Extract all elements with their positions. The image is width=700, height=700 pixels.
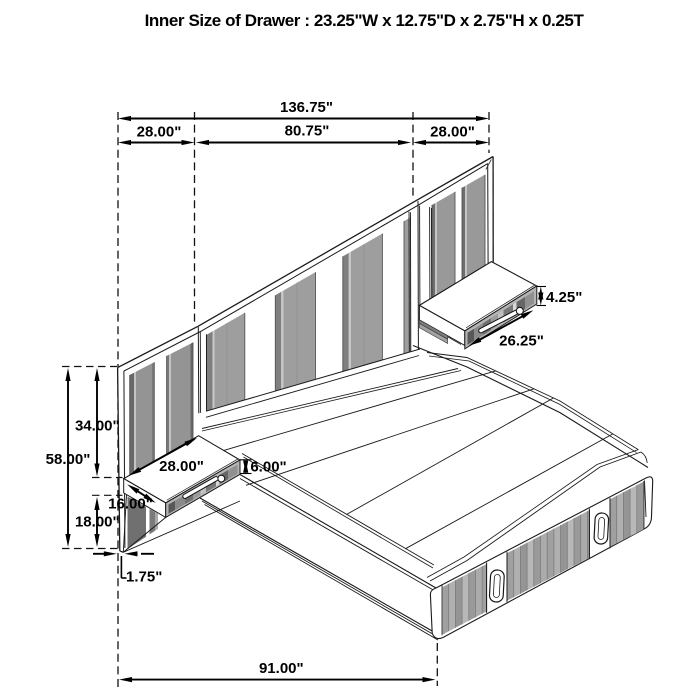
svg-text:Inner Size of Drawer : 23.25"W: Inner Size of Drawer : 23.25"W x 12.75"D…	[145, 11, 585, 30]
svg-text:26.25": 26.25"	[499, 332, 544, 349]
svg-text:28.00": 28.00"	[430, 124, 475, 141]
svg-text:34.00": 34.00"	[75, 418, 120, 435]
svg-text:58.00": 58.00"	[46, 451, 91, 468]
svg-text:1.75": 1.75"	[126, 569, 162, 586]
svg-text:80.75": 80.75"	[285, 123, 330, 140]
svg-text:18.00": 18.00"	[75, 514, 120, 531]
svg-text:4.25": 4.25"	[546, 289, 582, 306]
svg-text:136.75": 136.75"	[280, 99, 333, 116]
svg-text:28.00": 28.00"	[137, 124, 182, 141]
svg-text:16.00": 16.00"	[108, 496, 153, 513]
svg-text:28.00": 28.00"	[159, 458, 204, 475]
svg-text:6.00": 6.00"	[250, 459, 286, 476]
svg-text:91.00": 91.00"	[259, 660, 304, 677]
